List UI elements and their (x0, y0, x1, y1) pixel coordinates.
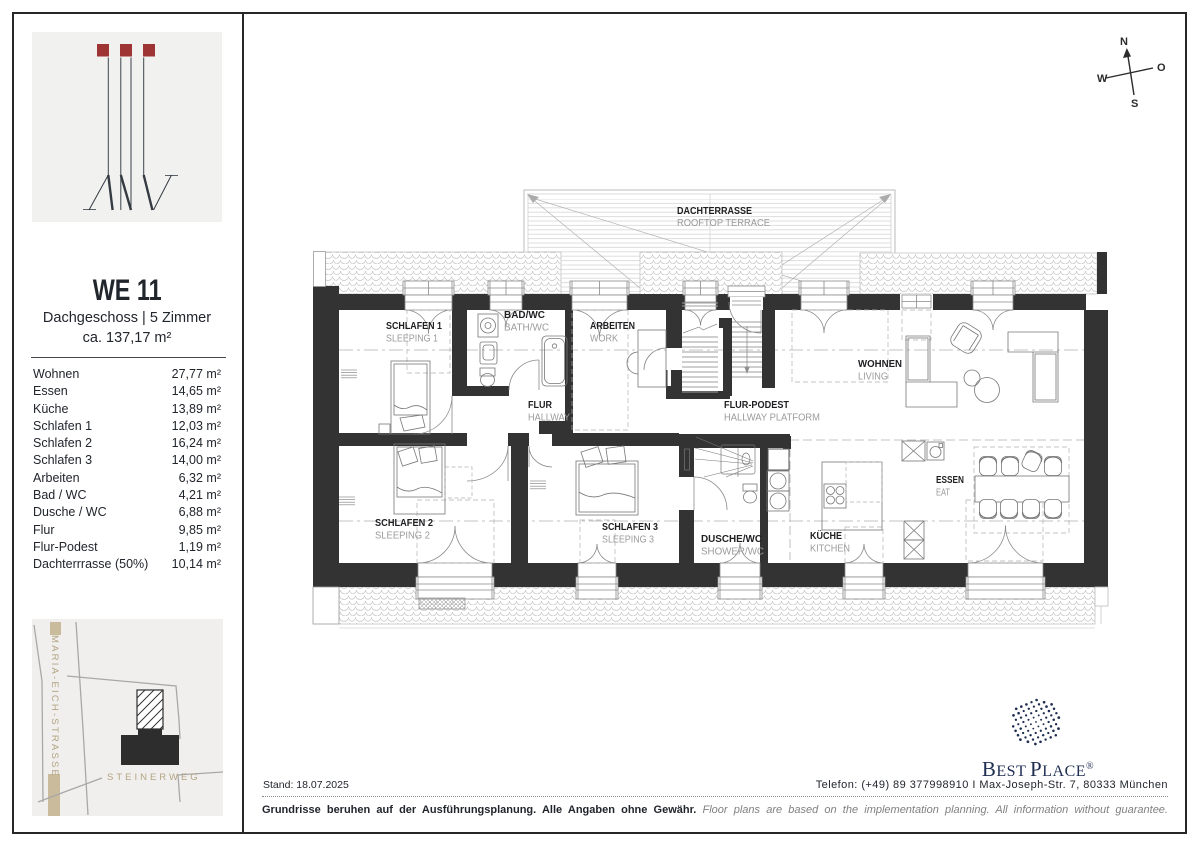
svg-text:ROOFTOP TERRACE: ROOFTOP TERRACE (677, 218, 770, 229)
svg-text:SCHLAFEN 3: SCHLAFEN 3 (602, 521, 658, 533)
svg-text:W: W (1097, 73, 1108, 85)
svg-text:N: N (1120, 36, 1128, 48)
svg-text:S: S (1131, 98, 1138, 110)
svg-text:BATH/WC: BATH/WC (504, 323, 549, 334)
svg-text:WOHNEN: WOHNEN (858, 358, 902, 370)
svg-text:SLEEPING 1: SLEEPING 1 (386, 334, 438, 345)
svg-text:O: O (1157, 62, 1166, 74)
svg-text:EAT: EAT (936, 488, 950, 499)
svg-text:HALLWAY PLATFORM: HALLWAY PLATFORM (724, 413, 820, 424)
svg-text:ESSEN: ESSEN (936, 474, 964, 486)
svg-text:KITCHEN: KITCHEN (810, 544, 850, 555)
svg-text:DUSCHE/WC: DUSCHE/WC (701, 533, 762, 545)
svg-text:WORK: WORK (590, 334, 618, 345)
svg-text:BAD/WC: BAD/WC (504, 309, 545, 321)
svg-text:SLEEPING 3: SLEEPING 3 (602, 535, 654, 546)
svg-text:ARBEITEN: ARBEITEN (590, 320, 635, 332)
svg-text:SCHLAFEN 1: SCHLAFEN 1 (386, 320, 442, 332)
svg-text:SHOWER/WC: SHOWER/WC (701, 547, 764, 558)
svg-text:FLUR: FLUR (528, 399, 552, 411)
svg-text:FLUR-PODEST: FLUR-PODEST (724, 399, 790, 411)
svg-text:SLEEPING 2: SLEEPING 2 (375, 531, 430, 542)
svg-text:LIVING: LIVING (858, 372, 888, 383)
svg-text:KÜCHE: KÜCHE (810, 529, 842, 542)
svg-text:HALLWAY: HALLWAY (528, 413, 570, 424)
svg-text:DACHTERRASSE: DACHTERRASSE (677, 205, 752, 217)
svg-text:SCHLAFEN 2: SCHLAFEN 2 (375, 517, 433, 529)
